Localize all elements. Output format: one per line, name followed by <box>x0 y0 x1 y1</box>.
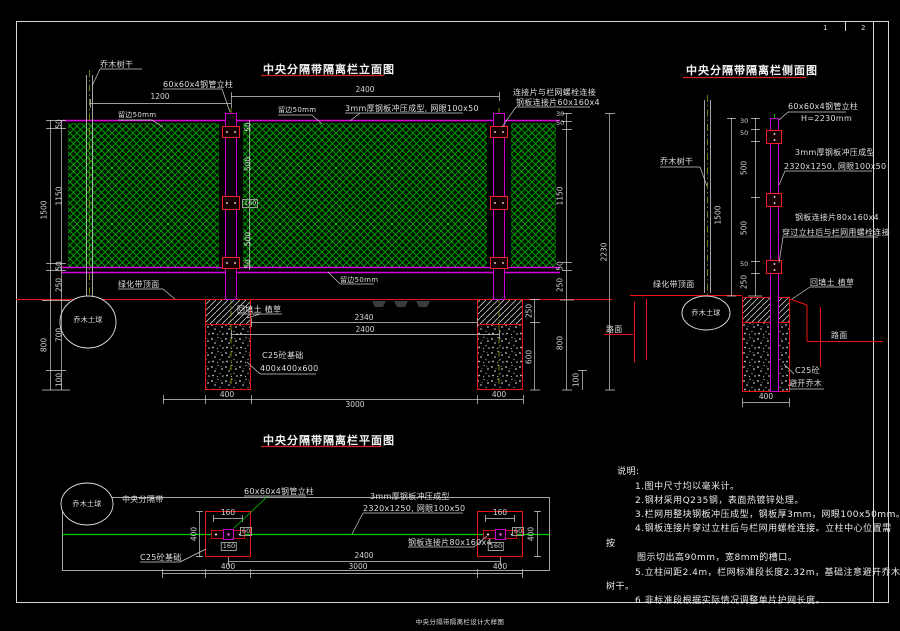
dim-2400: 2400 <box>355 326 374 335</box>
dim-160: 160 <box>242 199 258 208</box>
tree-trunk-label: 乔木树干 <box>100 60 133 69</box>
post-spec-label: 60x60x4钢管立柱 <box>788 102 858 111</box>
road-label: 路面 <box>606 325 623 334</box>
connector-label-1: 连接片与栏网螺栓连接 <box>513 88 596 97</box>
dim-400: 400 <box>759 393 773 402</box>
page-number-2: 2 <box>861 24 866 32</box>
tree-trunk-side <box>705 95 711 297</box>
note-item-3: 3.栏网用整块钢板冲压成型，钢板厚3mm，网眼100x50mm。 <box>635 507 900 520</box>
dim-50: 50 <box>556 120 564 127</box>
note-item-4-wrap: 按 <box>606 536 616 549</box>
mesh-spec-label-2: 2320x1250, 网眼100x50 <box>784 162 886 171</box>
dim-50: 50 <box>245 122 254 132</box>
tree-ball-label: 乔木土球 <box>73 316 102 324</box>
dim-100: 100 <box>56 373 65 387</box>
dim-500: 500 <box>245 157 254 171</box>
dim-400: 400 <box>528 527 537 541</box>
dim-2340: 2340 <box>354 314 373 323</box>
dim-1200: 1200 <box>150 93 169 102</box>
dim-30: 30 <box>556 111 564 118</box>
dim-100: 100 <box>573 373 582 387</box>
dim-160: 160 <box>488 542 504 551</box>
note-item-5-wrap: 树干。 <box>606 579 635 592</box>
dim-1500: 1500 <box>715 205 724 224</box>
dim-500: 500 <box>741 161 750 175</box>
cad-sheet: 1 2 中央分隔带隔离栏设计大样图 中央分隔带隔离栏立面图 乔木树干 60x60… <box>0 0 900 631</box>
drawing-geometry <box>0 0 900 631</box>
post-spec-label: 60x60x4钢管立柱 <box>163 80 233 89</box>
foundation-label: C25砼基础 <box>140 553 182 562</box>
dim-400: 400 <box>493 563 507 572</box>
side-title: 中央分隔带隔离栏侧面图 <box>686 62 818 78</box>
dim-2400: 2400 <box>355 86 374 95</box>
dim-30: 30 <box>740 118 748 125</box>
tree-trunk-label: 乔木树干 <box>660 157 693 166</box>
foundation-side <box>743 298 790 392</box>
edge-margin-label: 留边50mm <box>118 111 156 119</box>
dim-500: 500 <box>245 232 254 246</box>
belt-top-label: 绿化带顶面 <box>653 280 695 289</box>
dim-3000: 3000 <box>348 563 367 572</box>
note-item-5: 5.立柱间距2.4m，栏网标准段长度2.32m，基础注意避开乔木 <box>635 565 900 578</box>
c25-label-1: C25砼 <box>795 366 820 375</box>
note-item-4: 4.钢板连接片穿过立柱后与栏网用螺栓连接。立柱中心位置需 <box>635 521 892 534</box>
connector-label-2: 钢板连接片60x160x4 <box>516 98 600 107</box>
dim-60: 60 <box>240 527 252 536</box>
dim-160: 160 <box>221 509 235 518</box>
page-number-1: 1 <box>823 24 828 32</box>
dim-250: 250 <box>557 278 566 292</box>
dim-2230: 2230 <box>601 242 610 261</box>
note-item-4-cont: 图示切出高90mm，宽8mm的槽口。 <box>637 550 797 563</box>
dim-50: 50 <box>740 130 748 137</box>
dim-160: 160 <box>221 542 237 551</box>
dim-250: 250 <box>56 278 65 292</box>
dim-1150: 1150 <box>557 186 566 205</box>
belt-top-label: 绿化带顶面 <box>118 280 160 289</box>
mesh-spec-label-2: 2320x1250, 网眼100x50 <box>363 504 465 513</box>
mesh-spec-label-1: 3mm厚钢板冲压成型 <box>370 492 450 501</box>
mesh-panel <box>68 123 556 267</box>
plan-title: 中央分隔带隔离栏平面图 <box>263 432 395 448</box>
edge-margin-label: 留边50mm <box>340 276 378 284</box>
dim-2400: 2400 <box>354 552 373 561</box>
grass-marks <box>372 301 430 307</box>
foundation-label-2: 400x400x600 <box>260 364 319 373</box>
dim-50: 50 <box>557 261 566 271</box>
side-view <box>604 95 883 407</box>
dim-250: 250 <box>526 304 535 318</box>
backfill-label: 回填土 植草 <box>237 305 281 314</box>
dim-600: 600 <box>526 350 535 364</box>
dim-3000: 3000 <box>345 401 364 410</box>
plate-label-1: 钢板连接片80x160x4 <box>795 213 879 222</box>
dim-400: 400 <box>221 563 235 572</box>
dim-160: 160 <box>493 509 507 518</box>
tree-ball-label: 乔木土球 <box>72 500 101 508</box>
median-label: 中央分隔带 <box>122 495 164 504</box>
foundation-right <box>478 300 523 390</box>
backfill-label: 回填土 植草 <box>810 278 854 287</box>
dim-50: 50 <box>56 261 65 271</box>
notes-heading: 说明: <box>617 464 640 477</box>
dim-1150: 1150 <box>56 186 65 205</box>
mesh-spec-label-1: 3mm厚钢板冲压成型 <box>795 148 875 157</box>
road-label: 路面 <box>831 331 848 340</box>
dim-800: 800 <box>557 336 566 350</box>
dim-700: 700 <box>56 328 65 342</box>
elevation-title: 中央分隔带隔离栏立面图 <box>263 61 395 77</box>
dim-400: 400 <box>220 391 234 400</box>
dim-50: 50 <box>740 261 748 268</box>
dim-60: 60 <box>512 527 524 536</box>
dim-400: 400 <box>492 391 506 400</box>
plate-label-2: 穿过立柱后与栏网用螺栓连接 <box>782 228 890 237</box>
dim-1500: 1500 <box>41 200 50 219</box>
dim-400: 400 <box>191 527 200 541</box>
mesh-spec-label: 3mm厚钢板冲压成型, 网眼100x50 <box>345 104 479 113</box>
sheet-caption: 中央分隔带隔离栏设计大样图 <box>416 619 504 626</box>
c25-label-2: 避开乔木 <box>789 379 822 388</box>
edge-margin-label: 留边50mm <box>278 106 316 114</box>
post-height-label: H=2230mm <box>801 114 852 123</box>
plate-label: 钢板连接片80x160x4 <box>408 538 492 547</box>
dim-50: 50 <box>245 259 254 269</box>
foundation-label-1: C25砼基础 <box>262 351 304 360</box>
dim-500: 500 <box>741 221 750 235</box>
note-item-1: 1.图中尺寸均以毫米计。 <box>635 479 740 492</box>
tree-ball-label: 乔木土球 <box>691 309 720 317</box>
dim-50: 50 <box>56 119 65 129</box>
dim-250: 250 <box>741 275 750 289</box>
note-item-2: 2.钢材采用Q235钢，表面热镀锌处理。 <box>635 493 804 506</box>
note-item-6: 6.非标准段根据实际情况调整单片护网长度。 <box>635 593 825 606</box>
post-spec-label: 60x60x4钢管立柱 <box>244 487 314 496</box>
dim-800: 800 <box>41 338 50 352</box>
